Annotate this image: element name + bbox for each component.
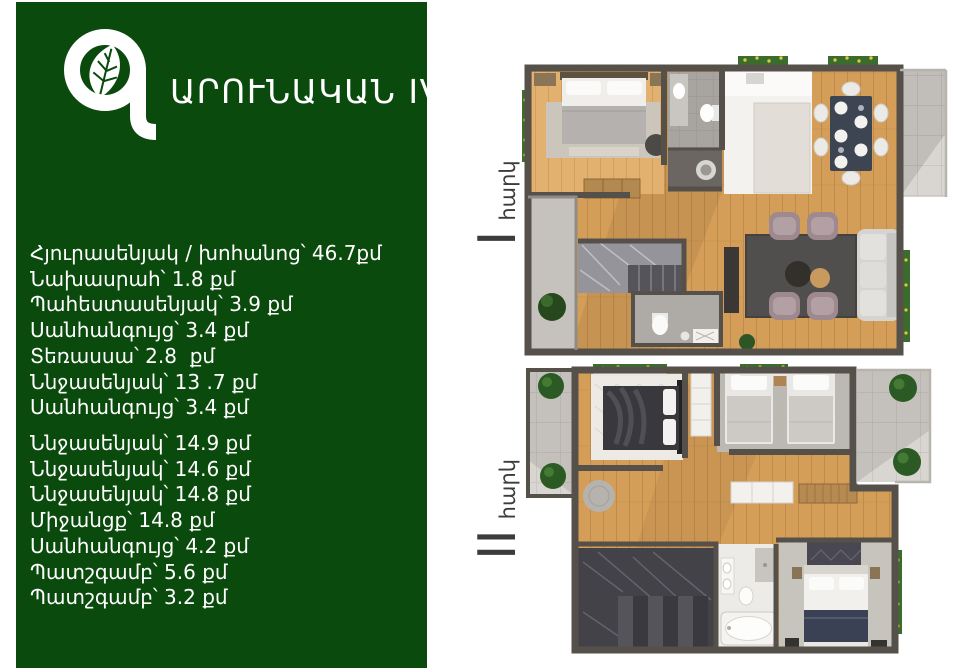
toilet xyxy=(739,587,753,605)
brand-name-text: ԱՐՈՒՆԱԿԱՆ xyxy=(170,72,396,111)
bathroom-first-floor xyxy=(668,72,722,190)
toilet xyxy=(700,104,714,122)
floor-plan-2-image xyxy=(513,362,950,668)
kitchen xyxy=(724,68,812,194)
balcony-left xyxy=(528,370,575,496)
room-line: Նախասրահ՝ 1.8 քմ xyxy=(30,267,422,293)
coffee-table xyxy=(785,261,811,287)
room-line: Պատշգամբ՝ 3.2 քմ xyxy=(30,585,422,611)
patterned-rug xyxy=(807,542,861,567)
room-line: Ննջասենյակ՝ 14.9 քմ xyxy=(30,431,422,457)
terrace-right xyxy=(857,370,930,482)
floor2-room-list: Ննջասենյակ՝ 14.9 քմ Ննջասենյակ՝ 14.6 քմ … xyxy=(30,431,422,611)
room-line: Հյուրասենյակ / խոհանոց՝ 46.7քմ xyxy=(30,241,422,267)
tree-icon xyxy=(538,373,564,399)
floor-plan-1 xyxy=(510,45,950,360)
floor2-label: II հարկ xyxy=(472,436,516,560)
floor1-room-list: Հյուրասենյակ / խոհանոց՝ 46.7քմ Նախասրահ՝… xyxy=(30,241,422,421)
guest-bathroom xyxy=(633,293,721,345)
bed-headboard xyxy=(804,565,868,574)
brand-panel: ԱՐՈՒՆԱԿԱՆIV Հյուրասենյակ / խոհանոց՝ 46.7… xyxy=(16,2,427,668)
tv-unit xyxy=(724,247,739,313)
bedroom-first-floor xyxy=(532,72,667,194)
room-line: Սանհանգույց՝ 4.2 քմ xyxy=(30,534,422,560)
terrace-upper-right xyxy=(900,70,946,197)
bathroom-second-floor xyxy=(718,544,776,648)
room-line: Ննջասենյակ՝ 13 .7 քմ xyxy=(30,370,422,396)
poster: ԱՐՈՒՆԱԿԱՆIV Հյուրասենյակ / խոհանոց՝ 46.7… xyxy=(0,0,953,672)
room-line: Ննջասենյակ՝ 14.8 քմ xyxy=(30,482,422,508)
tree-icon xyxy=(889,374,917,402)
room-line: Միջանցք՝ 14.8 քմ xyxy=(30,508,422,534)
room-line: Պահեստասենյակ՝ 3.9 քմ xyxy=(30,292,422,318)
kitchen-island xyxy=(754,103,810,193)
brand-number: IV xyxy=(408,72,443,111)
floor-plan-1-image xyxy=(510,45,950,360)
shelf-cabinet xyxy=(691,372,711,436)
tree-icon xyxy=(540,463,566,489)
room-line: Ննջասենյակ՝ 14.6 քմ xyxy=(30,457,422,483)
potted-plant xyxy=(739,334,755,350)
stairs-second-floor xyxy=(578,548,716,648)
sink-counter xyxy=(670,74,688,126)
stairs-first-floor xyxy=(578,241,684,293)
bedroom-twin xyxy=(717,370,853,452)
room-line: Սանհանգույց՝ 3.4 քմ xyxy=(30,395,422,421)
room-line: Պատշգամբ՝ 5.6 քմ xyxy=(30,560,422,586)
brand-logo xyxy=(58,20,178,148)
round-rug xyxy=(583,480,615,512)
side-terrace xyxy=(528,197,576,352)
brand-title: ԱՐՈՒՆԱԿԱՆIV xyxy=(170,72,444,111)
kitchen-sink xyxy=(746,73,764,84)
floor-plan-2 xyxy=(513,362,950,668)
room-line: Տեռասսա՝ 2.8 քմ xyxy=(30,344,422,370)
tree-icon xyxy=(893,448,921,476)
toilet xyxy=(652,315,668,335)
bedroom-lower-right xyxy=(779,538,895,650)
room-line: Սանհանգույց՝ 3.4 քմ xyxy=(30,318,422,344)
brand: ԱՐՈՒՆԱԿԱՆIV xyxy=(58,20,423,148)
